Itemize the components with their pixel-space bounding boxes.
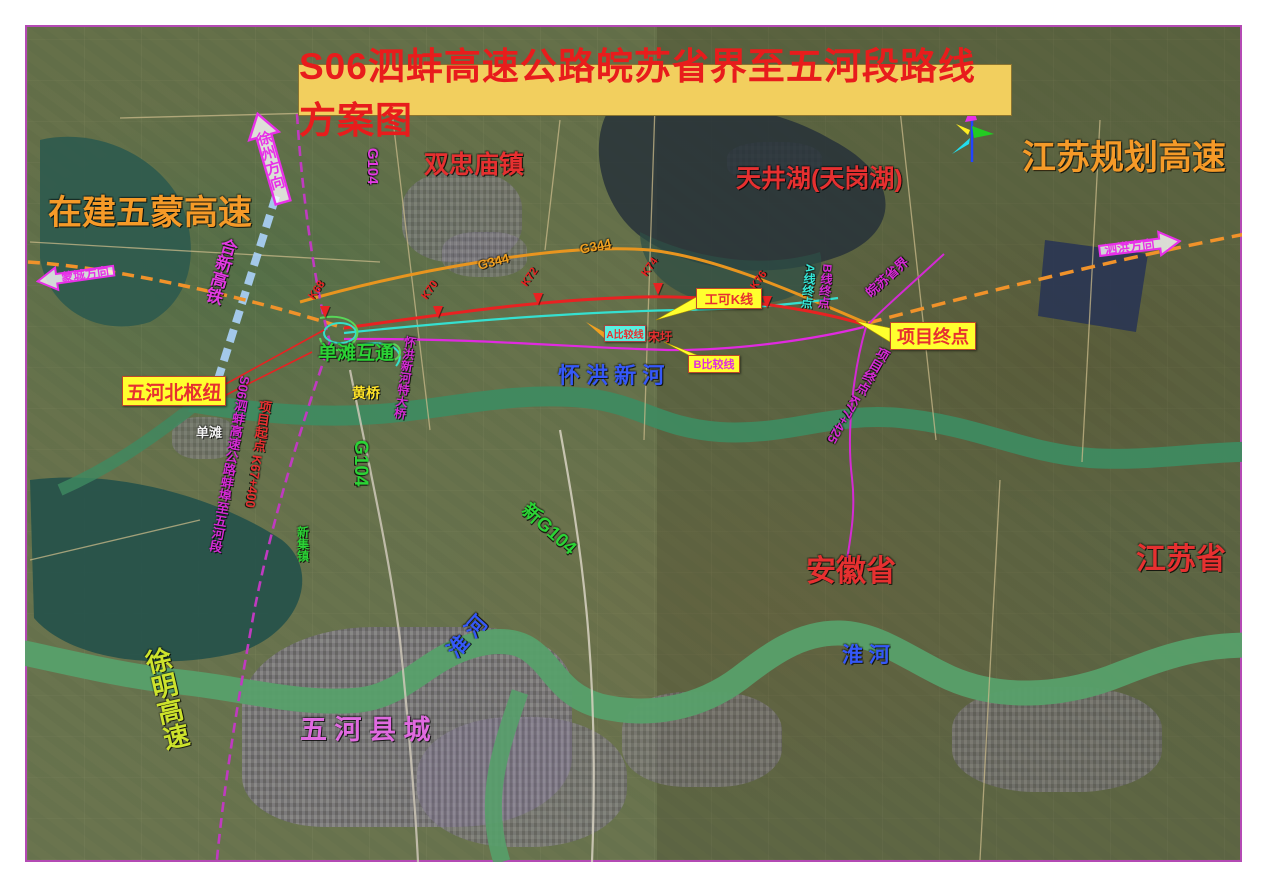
- callout-a-compare-line: A比较线: [604, 325, 646, 342]
- marker-k74-label: K74: [639, 256, 660, 279]
- arrow-sihong-direction: 泗洪方向: [1096, 223, 1184, 274]
- callout-project-end: 项目终点: [890, 322, 976, 350]
- arrow-xuzhou-direction-text: 徐州方向: [254, 128, 287, 194]
- label-xuming-expwy: 徐明高速: [140, 645, 190, 752]
- label-wumeng-expwy-uc: 在建五蒙高速: [48, 196, 252, 232]
- callout-b-compare-line: B比较线: [688, 355, 740, 373]
- arrow-mengcheng-direction-text: 蒙城方向: [60, 263, 110, 285]
- label-huaihe-river-west: 淮 河: [444, 612, 492, 662]
- label-huangqiao: 黄桥: [352, 386, 380, 401]
- marker-k68-label: K68: [306, 279, 327, 302]
- callout-gongke-k-line: 工可K线: [696, 288, 762, 309]
- marker-k70-triangle: [433, 306, 443, 318]
- label-wuhe-county-town: 五 河 县 城: [300, 716, 431, 744]
- label-g344-east: G344: [579, 237, 613, 257]
- label-huaihong-new-river: 怀 洪 新 河: [558, 364, 664, 387]
- label-project-start-chainage: 项目起点 K67+400: [243, 399, 272, 509]
- marker-k76-triangle: [762, 296, 772, 308]
- arrow-mengcheng-direction-svg: 蒙城方向: [34, 255, 118, 298]
- map-title-text: S06泗蚌高速公路皖苏省界至五河段路线方案图: [299, 36, 1011, 144]
- label-a-line-end: A线终点: [799, 263, 816, 309]
- label-jiangsu-planned-expwy: 江苏规划高速: [1022, 141, 1226, 177]
- label-g344-west: G344: [476, 252, 510, 273]
- arrow-sihong-direction-svg: 泗洪方向: [1096, 223, 1184, 269]
- label-hexin-railway: 合新高铁: [202, 236, 238, 306]
- label-dantan: 单滩: [196, 426, 222, 440]
- callout-wuhebei-hub: 五河北枢纽: [122, 376, 226, 406]
- label-g104-south: G104: [350, 440, 370, 486]
- label-jiangsu-province: 江苏省: [1136, 544, 1226, 576]
- arrow-mengcheng-direction: 蒙城方向: [34, 255, 118, 303]
- map-title-banner: S06泗蚌高速公路皖苏省界至五河段路线方案图: [298, 64, 1012, 116]
- label-shuangzhongmiao-town: 双忠庙镇: [424, 152, 524, 178]
- marker-k70-label: K70: [419, 279, 440, 302]
- label-huaihe-river-east: 淮 河: [842, 645, 890, 667]
- label-tianjing-lake: 天井湖(天岗湖): [736, 166, 903, 192]
- label-anhui-province: 安徽省: [806, 556, 896, 588]
- marker-k72-label: K72: [519, 266, 540, 289]
- label-project-end-chainage: 项目终点 K77+425: [825, 345, 891, 446]
- arrow-sihong-direction-text: 泗洪方向: [1104, 236, 1156, 257]
- marker-k74-triangle: [653, 283, 663, 295]
- label-g104-north: G104: [364, 148, 380, 185]
- label-xinji-town: 新集镇: [296, 526, 309, 562]
- marker-k68-triangle: [320, 306, 330, 318]
- label-dantan-interchange: 单滩互通: [318, 344, 394, 364]
- label-songwei-village: 宋圩: [648, 331, 672, 344]
- marker-k72-triangle: [533, 293, 543, 305]
- label-b-line-end: B线终点: [816, 263, 833, 309]
- route-plan-map: 在建五蒙高速江苏规划高速双忠庙镇天井湖(天岗湖)安徽省江苏省怀 洪 新 河淮 河…: [0, 0, 1267, 895]
- label-provincial-border: 皖苏省界: [863, 255, 911, 300]
- label-new-g104: 新G104: [517, 501, 579, 560]
- label-huaihong-bridge: 怀洪新河特大桥: [392, 335, 416, 420]
